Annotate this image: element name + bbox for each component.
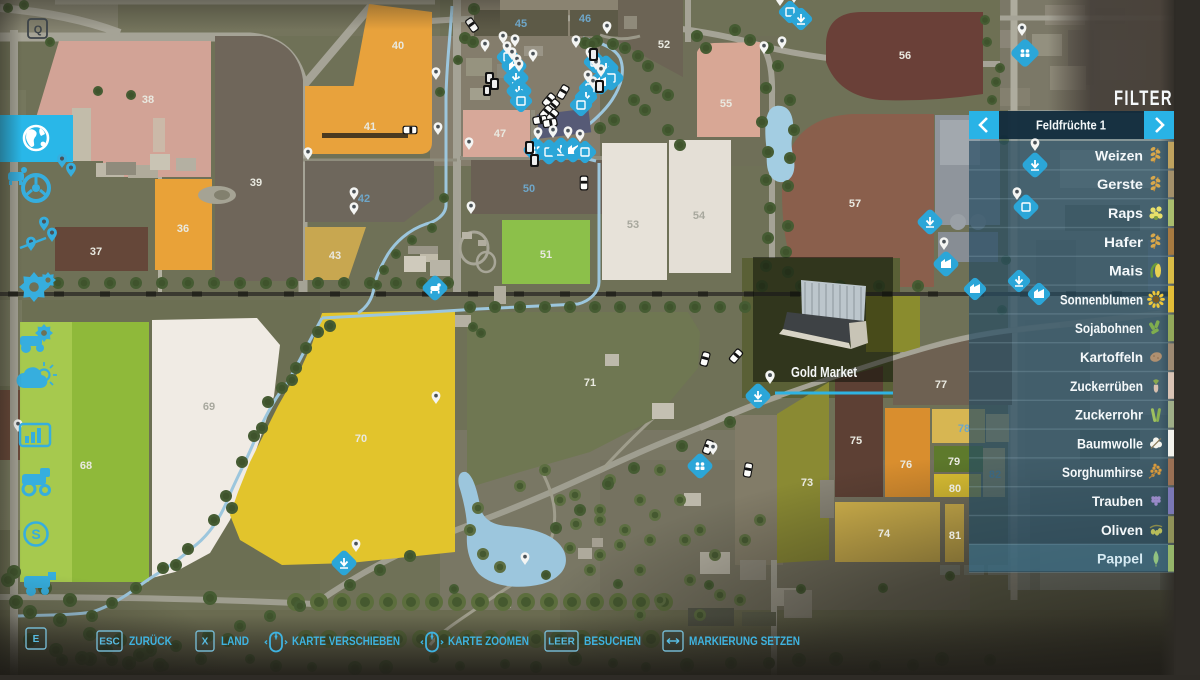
- svg-text:Gerste: Gerste: [1097, 176, 1143, 192]
- svg-text:51: 51: [540, 249, 552, 261]
- svg-text:KARTE ZOOMEN: KARTE ZOOMEN: [448, 636, 529, 648]
- svg-text:74: 74: [878, 528, 891, 540]
- svg-text:38: 38: [142, 94, 154, 106]
- svg-text:MARKIERUNG SETZEN: MARKIERUNG SETZEN: [689, 636, 800, 648]
- svg-text:FILTER: FILTER: [1114, 86, 1173, 110]
- svg-text:57: 57: [849, 198, 861, 210]
- svg-text:Trauben: Trauben: [1092, 493, 1143, 509]
- svg-text:80: 80: [949, 483, 961, 495]
- svg-text:50: 50: [523, 183, 535, 195]
- svg-text:Raps: Raps: [1108, 205, 1143, 221]
- svg-text:Gold Market: Gold Market: [791, 364, 857, 381]
- svg-text:52: 52: [658, 39, 670, 51]
- svg-text:40: 40: [392, 40, 404, 52]
- svg-text:76: 76: [900, 459, 912, 471]
- svg-text:Sorghumhirse: Sorghumhirse: [1062, 464, 1143, 480]
- svg-text:Kartoffeln: Kartoffeln: [1080, 349, 1143, 365]
- svg-text:ESC: ESC: [99, 637, 120, 648]
- svg-text:81: 81: [949, 530, 961, 542]
- svg-text:Zuckerrüben: Zuckerrüben: [1070, 378, 1143, 394]
- svg-text:79: 79: [948, 456, 960, 468]
- svg-text:39: 39: [250, 177, 262, 189]
- svg-text:Hafer: Hafer: [1104, 234, 1144, 250]
- svg-text:BESUCHEN: BESUCHEN: [584, 636, 641, 648]
- svg-text:55: 55: [720, 98, 732, 110]
- svg-text:Feldfrüchte 1: Feldfrüchte 1: [1036, 119, 1106, 133]
- svg-text:78: 78: [958, 423, 970, 435]
- svg-text:41: 41: [364, 121, 376, 133]
- svg-text:56: 56: [899, 50, 911, 62]
- svg-text:53: 53: [627, 219, 639, 231]
- svg-text:Sonnenblumen: Sonnenblumen: [1060, 291, 1143, 307]
- svg-text:70: 70: [355, 433, 367, 445]
- svg-text:Mais: Mais: [1109, 263, 1143, 279]
- svg-text:Weizen: Weizen: [1095, 147, 1143, 163]
- svg-text:KARTE VERSCHIEBEN: KARTE VERSCHIEBEN: [292, 636, 400, 648]
- svg-text:69: 69: [203, 401, 215, 413]
- svg-text:37: 37: [90, 246, 102, 258]
- svg-text:68: 68: [80, 460, 92, 472]
- svg-text:E: E: [33, 634, 40, 645]
- svg-text:Baumwolle: Baumwolle: [1077, 435, 1143, 451]
- svg-text:Zuckerrohr: Zuckerrohr: [1075, 407, 1143, 423]
- svg-text:54: 54: [693, 210, 706, 222]
- svg-text:LAND: LAND: [221, 636, 249, 648]
- svg-text:75: 75: [850, 435, 862, 447]
- svg-text:46: 46: [579, 13, 591, 25]
- svg-text:36: 36: [177, 223, 189, 235]
- svg-text:42: 42: [358, 193, 370, 205]
- svg-text:S: S: [31, 526, 40, 542]
- svg-text:Sojabohnen: Sojabohnen: [1075, 320, 1143, 336]
- svg-text:71: 71: [584, 377, 596, 389]
- svg-text:45: 45: [515, 18, 527, 30]
- svg-text:77: 77: [935, 379, 947, 391]
- svg-text:LEER: LEER: [548, 637, 575, 648]
- svg-text:ZURÜCK: ZURÜCK: [129, 635, 173, 648]
- svg-text:Oliven: Oliven: [1101, 522, 1143, 538]
- svg-text:47: 47: [494, 128, 506, 140]
- svg-text:43: 43: [329, 250, 341, 262]
- svg-text:73: 73: [801, 477, 813, 489]
- svg-text:X: X: [202, 637, 209, 648]
- svg-text:Q: Q: [34, 24, 43, 36]
